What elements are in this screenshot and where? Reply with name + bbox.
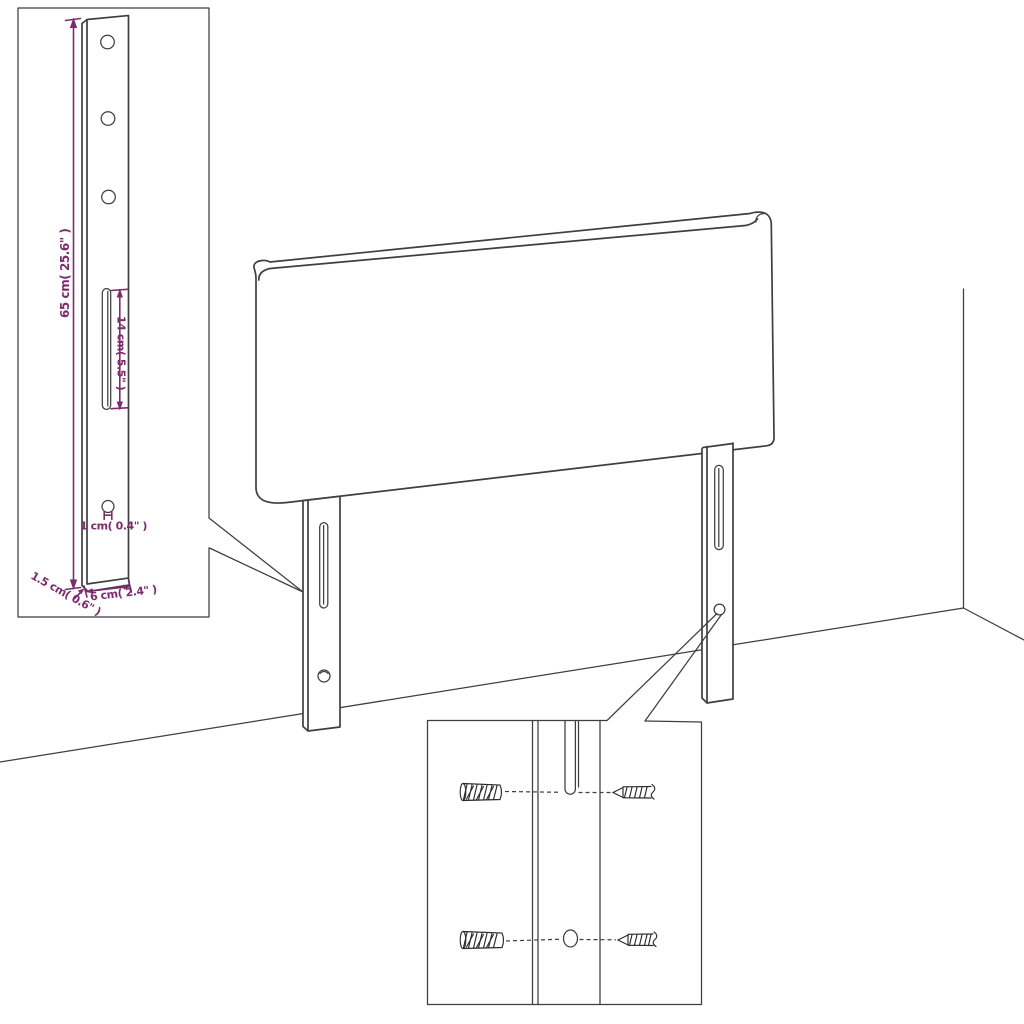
- callout-lines-left: [209, 518, 303, 592]
- hardware-detail-inset: [428, 721, 702, 1005]
- callout-wedge-left: [209, 518, 303, 592]
- headboard-panel: [254, 212, 774, 503]
- diagram-canvas: 65 cm( 25.6" ) 14 cm( 5.5" ) 1 cm( 0.4" …: [0, 0, 1024, 1024]
- headboard-right-leg: [702, 443, 733, 703]
- floor-line-right: [964, 608, 1024, 640]
- inset-leg-face: [82, 16, 130, 592]
- total-height-label: 65 cm( 25.6" ): [58, 229, 72, 318]
- assembly-diagram: 65 cm( 25.6" ) 14 cm( 5.5" ) 1 cm( 0.4" …: [0, 0, 1024, 1024]
- headboard-left-leg: [303, 496, 340, 731]
- hole-diameter-label: 1 cm( 0.4" ): [80, 520, 147, 533]
- leg-detail-inset: 65 cm( 25.6" ) 14 cm( 5.5" ) 1 cm( 0.4" …: [18, 8, 209, 619]
- slot-length-label: 14 cm( 5.5" ): [115, 316, 128, 391]
